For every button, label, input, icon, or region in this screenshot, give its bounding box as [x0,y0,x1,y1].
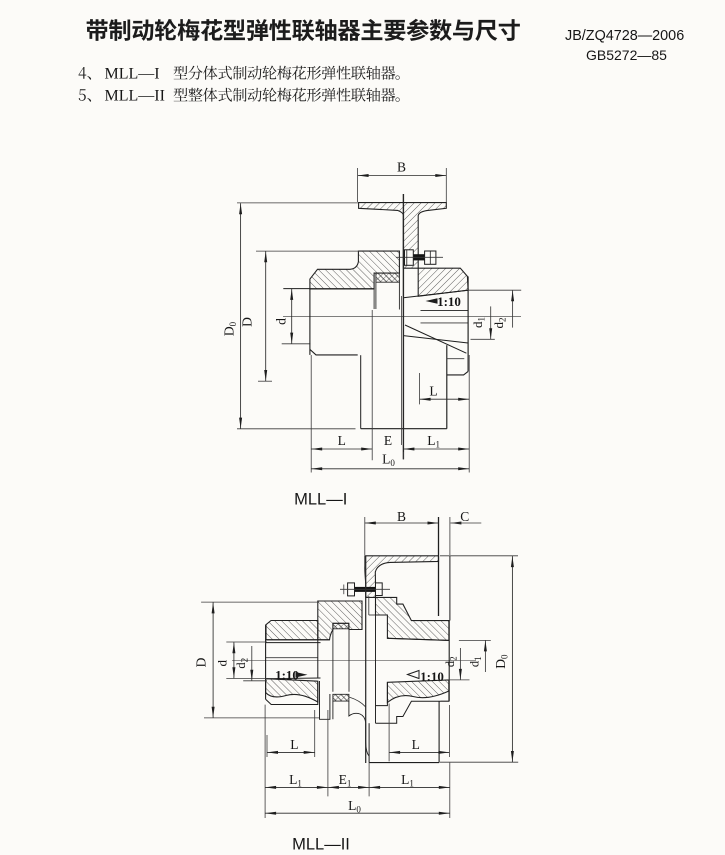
svg-text:MLL—II: MLL—II [105,88,165,105]
svg-text:B: B [397,160,406,175]
svg-text:JB/ZQ4728—2006: JB/ZQ4728—2006 [565,28,684,44]
svg-text:1:10: 1:10 [420,669,444,684]
svg-text:L: L [290,737,298,752]
svg-text:E: E [384,433,392,448]
svg-text:MLL—II: MLL—II [292,836,350,854]
svg-text:1:10: 1:10 [275,667,299,682]
svg-text:L: L [429,384,437,399]
svg-text:MLL—I: MLL—I [294,491,347,509]
svg-text:L: L [338,433,346,448]
svg-text:GB5272—85: GB5272—85 [586,47,667,63]
svg-text:d: d [215,659,230,666]
svg-text:B: B [397,509,406,524]
svg-text:MLL—I: MLL—I [105,66,160,83]
svg-text:D: D [240,317,255,327]
svg-text:d: d [274,318,289,325]
svg-text:L: L [412,737,420,752]
svg-text:C: C [460,509,469,524]
svg-text:D: D [194,657,209,667]
svg-text:1:10: 1:10 [437,294,461,309]
